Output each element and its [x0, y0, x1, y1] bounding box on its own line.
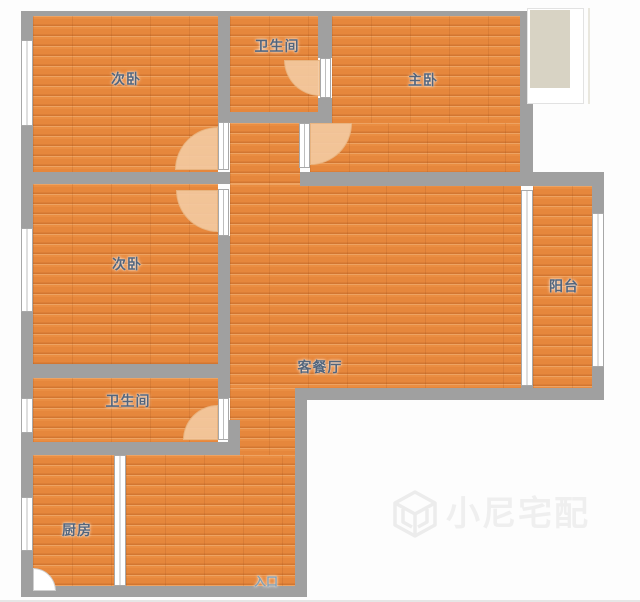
kitchen-glass-partition — [114, 455, 126, 586]
entrance-label: 入口 — [254, 573, 278, 590]
room-label-bedroom-top: 次卧 — [111, 69, 141, 89]
wall-bathroom-bottom — [218, 112, 332, 123]
wall-interior — [218, 236, 230, 364]
bay-window-line — [588, 8, 590, 104]
room-label-balcony: 阳台 — [549, 276, 579, 296]
entrance-corridor-floor — [126, 455, 295, 586]
wall-interior — [228, 420, 240, 442]
room-label-bathroom-top: 卫生间 — [255, 36, 300, 56]
door-panel — [218, 122, 229, 170]
wall-top — [21, 11, 533, 16]
floor-plan-image: 次卧 卫生间 主卧 次卧 阳台 客餐厅 卫生间 厨房 入口 小尼宅配 — [0, 0, 640, 602]
room-living-dining-floor — [230, 184, 521, 388]
watermark: 小尼宅配 — [392, 489, 590, 539]
watermark-text: 小尼宅配 — [446, 497, 590, 531]
door-panel — [320, 58, 331, 98]
wall-interior — [300, 172, 604, 186]
wall-interior — [218, 16, 230, 122]
door-panel — [218, 189, 229, 236]
door-panel — [218, 398, 229, 440]
window — [21, 497, 33, 551]
room-label-kitchen: 厨房 — [62, 520, 92, 540]
room-label-living-dining: 客餐厅 — [298, 357, 343, 377]
window — [21, 398, 33, 433]
room-label-bedroom-middle: 次卧 — [112, 254, 142, 274]
wall-bottom-right — [295, 388, 604, 400]
bay-window — [530, 10, 570, 88]
balcony-sliding-window — [521, 190, 533, 386]
hallway-floor — [230, 123, 300, 184]
window — [592, 213, 604, 367]
wall-interior — [21, 172, 230, 184]
wall-corridor-right — [295, 400, 307, 597]
room-label-bathroom-lower: 卫生间 — [106, 391, 151, 411]
cube-logo-icon — [392, 489, 438, 539]
window — [21, 40, 33, 126]
wall-bedroom-bottom — [21, 364, 230, 378]
window — [21, 228, 33, 312]
wall-bathroom-right — [318, 16, 332, 58]
wall-interior — [218, 378, 230, 398]
room-label-master-bedroom: 主卧 — [408, 70, 438, 90]
floor-plan: 次卧 卫生间 主卧 次卧 阳台 客餐厅 卫生间 厨房 入口 小尼宅配 — [0, 0, 640, 600]
door-panel — [299, 123, 310, 168]
wall-balcony-right — [592, 186, 604, 213]
wall-bathroom2-bottom — [21, 442, 240, 455]
